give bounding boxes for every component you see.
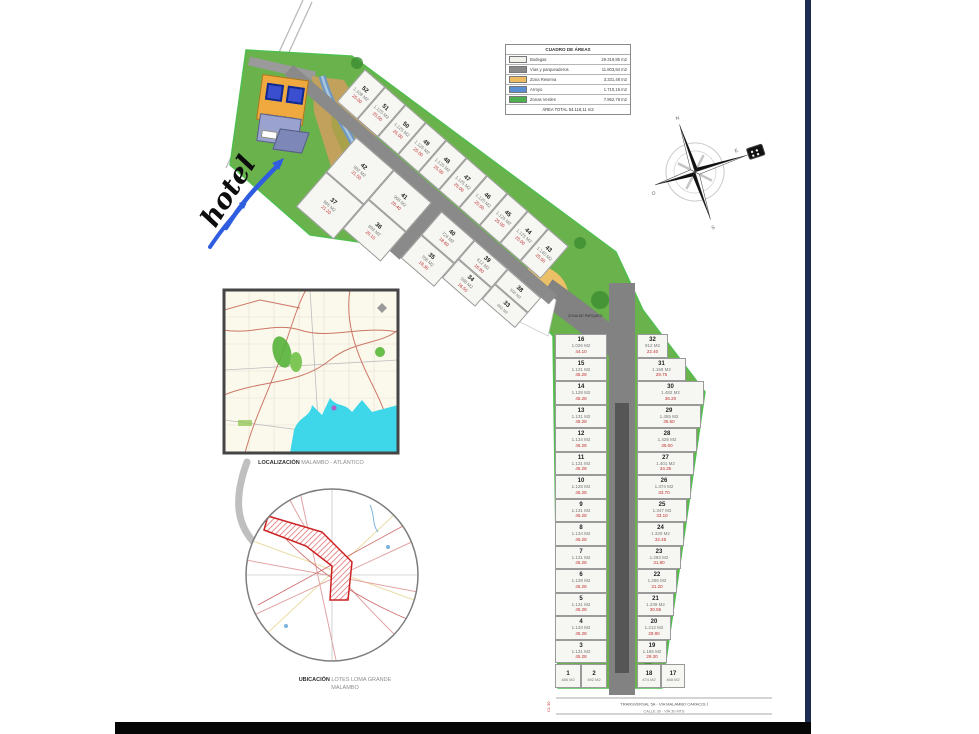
legend-value: 1.710,16 m2 — [591, 87, 630, 92]
pool-block — [265, 83, 284, 102]
localizacion-caption-rest: MALAMBO - ATLÁNTICO — [300, 460, 364, 466]
lot-n: 2 — [592, 671, 595, 677]
lot-d: 35.00 — [661, 444, 672, 449]
localizacion-map — [224, 290, 398, 453]
lot-d: 29.90 — [648, 632, 659, 637]
lot-d: 45.28 — [575, 655, 586, 660]
legend-swatch — [509, 96, 527, 103]
lot-n: 11 — [578, 455, 584, 461]
lot-d: 44.10 — [575, 350, 586, 355]
lot-16: 161.026 M244.10 — [555, 334, 607, 358]
lot-8: 81.134 M245.28 — [555, 522, 607, 546]
lot-n: 17 — [670, 671, 677, 677]
lot-7: 71.131 M245.28 — [555, 546, 607, 570]
lot-d: 45.28 — [575, 538, 586, 543]
lot-9: 91.131 M245.28 — [555, 499, 607, 523]
lot-n: 31 — [658, 361, 665, 367]
lot-27: 271.401 M234.35 — [637, 452, 694, 476]
lot-n: 5 — [579, 596, 582, 602]
lot-30: 301.482 M236.20 — [637, 381, 704, 405]
legend-label: Arroyo — [530, 87, 591, 92]
lot-n: 27 — [662, 455, 669, 461]
lot-17: 17468 M217.40 — [661, 664, 685, 688]
lot-d: 45.28 — [575, 420, 586, 425]
lot-10: 101.128 M245.28 — [555, 475, 607, 499]
lot-d: 45.28 — [575, 491, 586, 496]
lot-d: 45.28 — [575, 514, 586, 519]
lot-13: 131.131 M245.28 — [555, 405, 607, 429]
lot-d: 45.28 — [575, 444, 586, 449]
lot-1: 1486 M218.00 — [555, 664, 581, 688]
legend-label: Vías y parqueaderos — [530, 67, 591, 72]
compass-n-label: N — [675, 115, 681, 122]
legend-value: 3.331,48 m2 — [591, 77, 630, 82]
ubicacion-map — [246, 489, 418, 661]
legend-swatch — [509, 66, 527, 73]
legend-value: 7.952,78 m2 — [591, 97, 630, 102]
lot-n: 3 — [579, 643, 582, 649]
legend-row: Arroyo1.710,16 m2 — [506, 85, 630, 95]
compass-s-label: S — [711, 225, 717, 232]
road-core — [615, 403, 629, 673]
site-plan-photo: VÍA Arroyo ZONA DE PARQUEO — [0, 0, 979, 734]
lot-14: 141.128 M245.28 — [555, 381, 607, 405]
lot-29: 291.455 M235.60 — [637, 405, 701, 429]
lot-n: 1 — [566, 671, 569, 677]
lot-n: 15 — [578, 361, 585, 367]
areas-legend-table: CUADRO DE ÁREAS Bodegas29.319,85 m2Vías … — [505, 44, 631, 115]
plan-drawing: VÍA Arroyo ZONA DE PARQUEO — [0, 0, 979, 734]
lot-23: 231.293 M231.80 — [637, 546, 681, 570]
bottom-street: TRANSVERSAL 5A - VÍA MALAMBO CARACOLÍ CA… — [546, 698, 772, 714]
lot-column: 161.026 M244.10151.131 M245.28141.128 M2… — [553, 328, 705, 696]
ubicacion-caption-line2: MALAMBO — [255, 684, 435, 692]
lot-d: 28.75 — [656, 373, 667, 378]
localizacion-caption-bold: LOCALIZACIÓN — [258, 460, 300, 466]
lot-d: 22.40 — [647, 350, 658, 355]
lot-31: 311.168 M228.75 — [637, 358, 686, 382]
parking-zone-label: ZONA DE PARQUEO — [568, 314, 603, 318]
lot-d: 32.45 — [655, 538, 666, 543]
lot-d: 31.20 — [651, 585, 662, 590]
legend-total: ÁREA TOTAL 54.118,11 m2 — [506, 105, 630, 114]
lot-26: 261.374 M233.70 — [637, 475, 691, 499]
lot-4: 41.134 M245.28 — [555, 616, 607, 640]
localizacion-caption: LOCALIZACIÓN MALAMBO - ATLÁNTICO — [221, 459, 401, 467]
lot-d: 30.55 — [650, 608, 661, 613]
compass-o-label: O — [651, 190, 657, 197]
lot-d: 36.20 — [665, 397, 676, 402]
legend-value: 11.803,84 m2 — [591, 67, 630, 72]
lot-d: 35.60 — [663, 420, 674, 425]
lot-3: 31.131 M245.28 — [555, 640, 607, 664]
lot-25: 251.347 M233.10 — [637, 499, 687, 523]
lot-n: 13 — [578, 408, 585, 414]
lot-22: 221.266 M231.20 — [637, 569, 677, 593]
lot-2: 2492 M218.20 — [581, 664, 607, 688]
lot-15: 151.131 M245.28 — [555, 358, 607, 382]
compass-e-label: E — [734, 148, 740, 155]
street-name-2: CALLE 30 - VÍA 30 MTS — [644, 710, 685, 714]
compass-rose: N S E O — [631, 94, 782, 246]
legend-swatch — [509, 76, 527, 83]
street-side-label: CL 30 — [546, 701, 551, 712]
ubicacion-caption-bold: UBICACIÓN — [299, 677, 330, 683]
lot-d: 29.30 — [646, 655, 657, 660]
lot-24: 241.320 M232.45 — [637, 522, 684, 546]
lot-a: 474 M2 — [642, 678, 655, 682]
lot-n: 21 — [652, 596, 659, 602]
lot-d: 33.70 — [658, 491, 669, 496]
legend-swatch — [509, 86, 527, 93]
lot-28: 281.428 M235.00 — [637, 428, 697, 452]
lot-d: 45.28 — [575, 467, 586, 472]
lot-d: 45.28 — [575, 561, 586, 566]
lot-6: 61.128 M245.28 — [555, 569, 607, 593]
lot-n: 29 — [666, 408, 673, 414]
lot-d: 33.10 — [656, 514, 667, 519]
ubicacion-caption: UBICACIÓN LOTES LOMA GRANDE MALAMBO — [255, 676, 435, 693]
lot-18: 18474 M217.60 — [637, 664, 661, 688]
lot-n: 18 — [646, 671, 653, 677]
photo-right-border — [805, 0, 811, 734]
legend-row: Vías y parqueaderos11.803,84 m2 — [506, 65, 630, 75]
lot-d: 45.28 — [575, 585, 586, 590]
lot-n: 19 — [649, 643, 656, 649]
lot-n: 9 — [579, 502, 582, 508]
lot-d: 34.35 — [660, 467, 671, 472]
lot-d: 45.28 — [575, 373, 586, 378]
lot-20: 201.212 M229.90 — [637, 616, 671, 640]
lot-21: 211.239 M230.55 — [637, 593, 674, 617]
pool-block — [286, 86, 305, 105]
lot-d: 45.28 — [575, 397, 586, 402]
legend-label: Zona Reserva — [530, 77, 591, 82]
lot-n: 7 — [579, 549, 582, 555]
compass-target-icon — [746, 144, 765, 159]
legend-title: CUADRO DE ÁREAS — [506, 45, 630, 55]
lot-19: 191.185 M229.30 — [637, 640, 667, 664]
lot-n: 23 — [656, 549, 663, 555]
lot-a: 468 M2 — [666, 678, 679, 682]
legend-row: Zonas Verdes7.952,78 m2 — [506, 95, 630, 105]
lot-a: 486 M2 — [561, 678, 574, 682]
lot-d: 45.28 — [575, 608, 586, 613]
ubicacion-caption-rest: LOTES LOMA GRANDE — [330, 677, 391, 683]
legend-value: 29.319,85 m2 — [591, 57, 630, 62]
legend-label: Zonas Verdes — [530, 97, 591, 102]
lot-12: 121.134 M245.28 — [555, 428, 607, 452]
lot-5: 51.131 M245.28 — [555, 593, 607, 617]
lot-n: 25 — [659, 502, 666, 508]
legend-swatch — [509, 56, 527, 63]
lot-11: 111.131 M245.28 — [555, 452, 607, 476]
legend-row: Bodegas29.319,85 m2 — [506, 55, 630, 65]
main-vertical-road — [609, 283, 635, 695]
lot-d: 31.80 — [653, 561, 664, 566]
photo-bottom-border — [115, 722, 811, 734]
legend-row: Zona Reserva3.331,48 m2 — [506, 75, 630, 85]
lot-32: 32912 M222.40 — [637, 334, 668, 358]
lot-d: 45.28 — [575, 632, 586, 637]
street-name-1: TRANSVERSAL 5A - VÍA MALAMBO CARACOLÍ — [620, 702, 708, 707]
legend-label: Bodegas — [530, 57, 591, 62]
lot-a: 492 M2 — [587, 678, 600, 682]
